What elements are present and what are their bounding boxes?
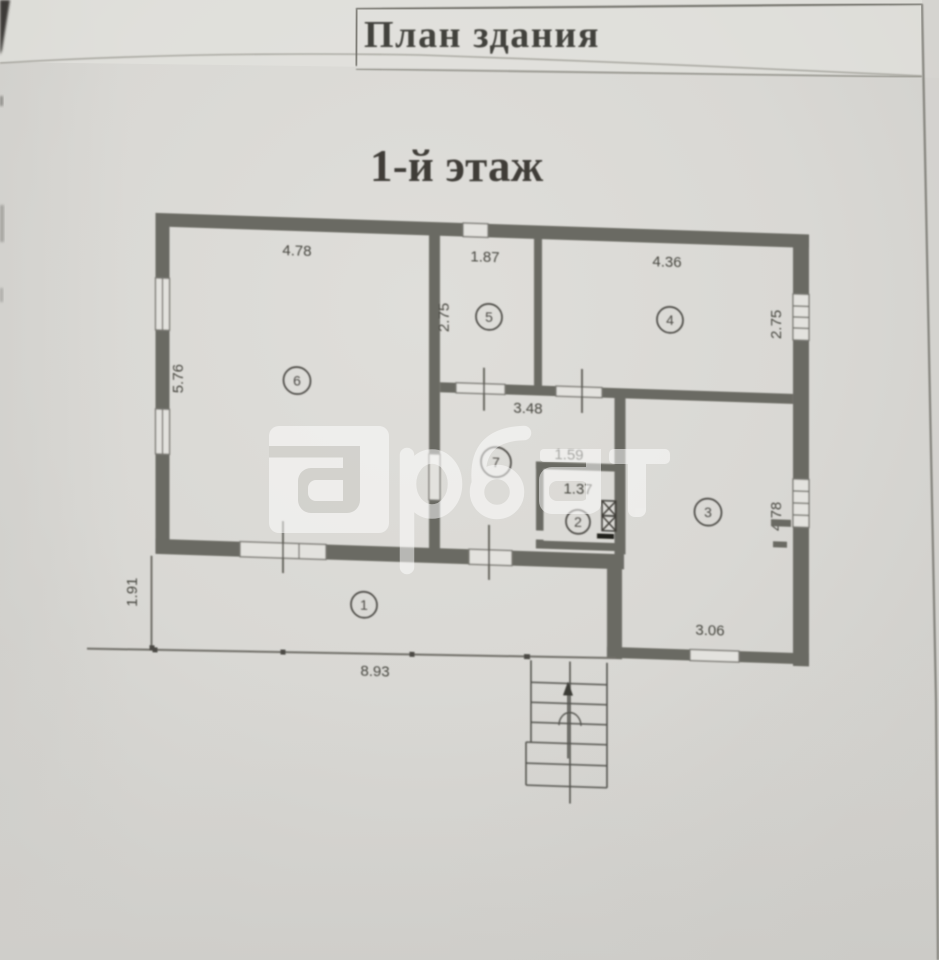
svg-text:4: 4 (666, 312, 674, 328)
svg-text:5: 5 (485, 309, 493, 325)
svg-text:1-й этаж: 1-й этаж (370, 141, 544, 191)
svg-text:8.93: 8.93 (360, 663, 389, 681)
svg-text:3.48: 3.48 (513, 400, 542, 418)
svg-text:1: 1 (360, 597, 368, 613)
svg-text:2.75: 2.75 (768, 309, 785, 339)
svg-text:1.91: 1.91 (124, 577, 141, 607)
svg-text:4.78: 4.78 (768, 501, 785, 531)
svg-text:5.76: 5.76 (170, 364, 187, 394)
svg-text:2.75: 2.75 (436, 303, 453, 333)
svg-text:3: 3 (704, 504, 712, 520)
svg-text:3.06: 3.06 (695, 622, 724, 640)
svg-text:4.36: 4.36 (652, 253, 681, 271)
svg-text:1.87: 1.87 (470, 248, 499, 266)
svg-text:План здания: План здания (364, 14, 600, 56)
svg-text:4.78: 4.78 (282, 242, 311, 260)
svg-text:6: 6 (293, 372, 301, 388)
svg-text:2: 2 (574, 514, 582, 530)
